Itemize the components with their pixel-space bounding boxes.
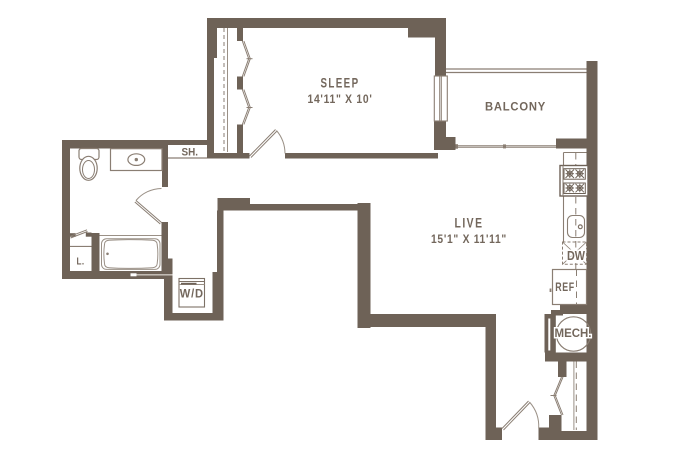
svg-text:LIVE: LIVE (455, 214, 484, 230)
svg-text:MECH.: MECH. (555, 326, 592, 340)
svg-text:15'1" X 11'11": 15'1" X 11'11" (431, 234, 507, 246)
svg-text:BALCONY: BALCONY (485, 102, 546, 114)
svg-text:SH.: SH. (182, 147, 199, 159)
svg-text:DW: DW (567, 249, 585, 263)
svg-text:W/D: W/D (180, 288, 204, 300)
svg-text:L.: L. (77, 256, 85, 268)
svg-text:SLEEP: SLEEP (321, 75, 360, 91)
svg-text:REF: REF (555, 282, 575, 294)
svg-text:14'11" X 10': 14'11" X 10' (308, 94, 373, 106)
